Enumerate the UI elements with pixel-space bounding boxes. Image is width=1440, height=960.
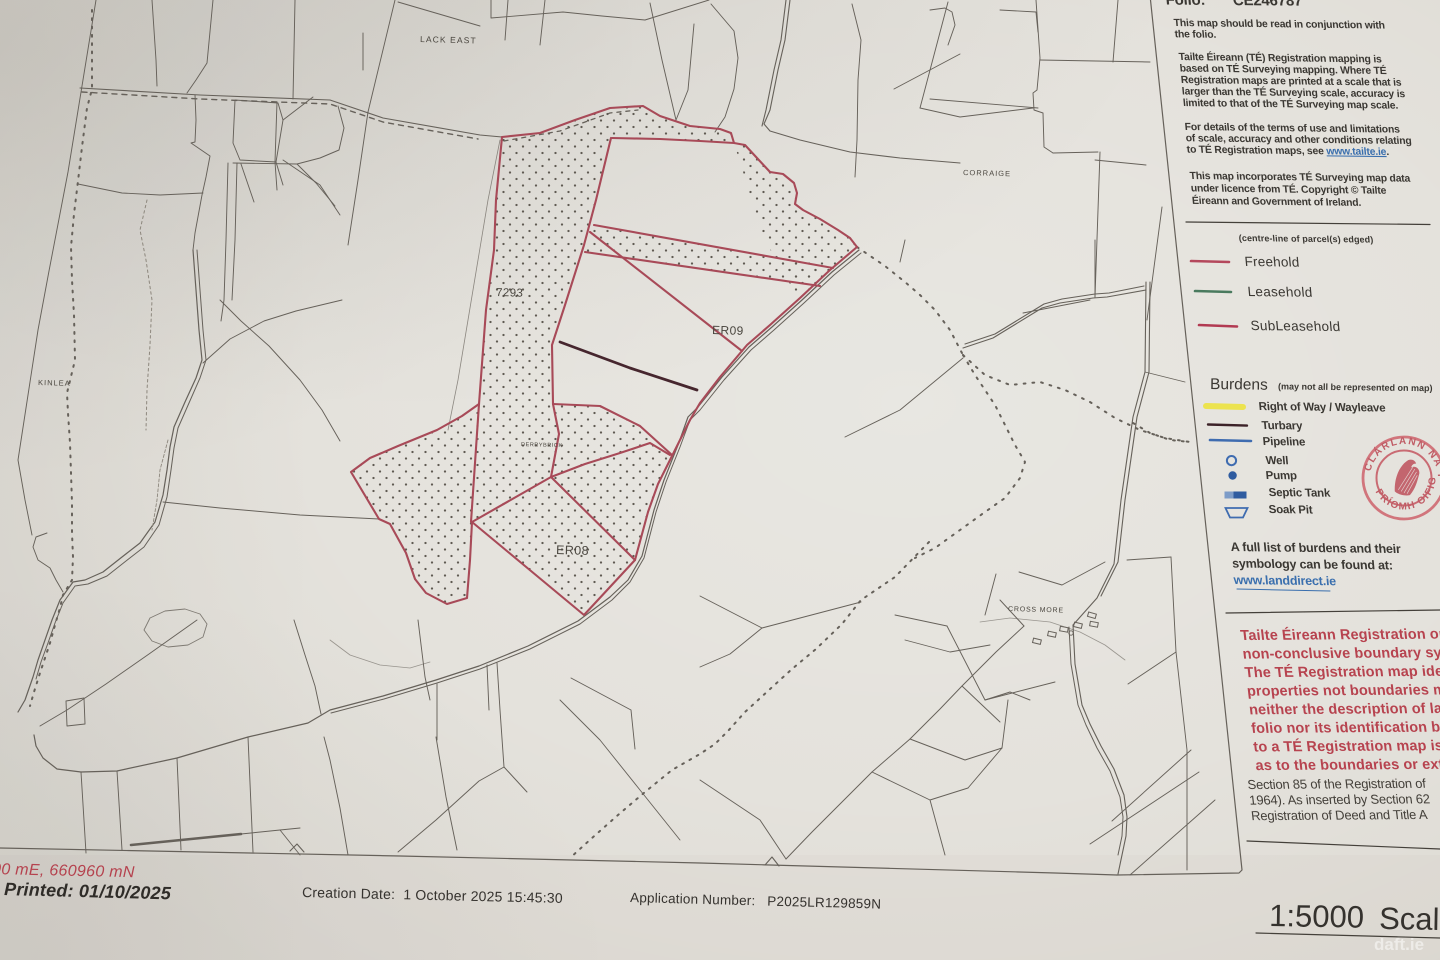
- svg-text:CORRAIGE: CORRAIGE: [963, 168, 1011, 178]
- svg-text:Pipeline: Pipeline: [1262, 436, 1306, 449]
- svg-text:Well: Well: [1265, 455, 1289, 467]
- svg-text:Leasehold: Leasehold: [1247, 284, 1313, 300]
- svg-text:non-conclusive boundary syst: non-conclusive boundary syst: [1242, 645, 1440, 662]
- svg-text:DERRYBRICK: DERRYBRICK: [521, 442, 563, 449]
- svg-text:7293: 7293: [496, 287, 523, 300]
- svg-text:daft.ie: daft.ie: [1374, 935, 1424, 954]
- svg-text:LACK EAST: LACK EAST: [420, 34, 477, 45]
- svg-text:Tailte Éireann Registration op: Tailte Éireann Registration ope: [1240, 626, 1440, 644]
- svg-text:1:5000: 1:5000: [1269, 898, 1364, 935]
- svg-text:KINLEA: KINLEA: [38, 378, 71, 388]
- svg-text:Section 85 of the Registration: Section 85 of the Registration of: [1247, 776, 1427, 792]
- svg-text:Soak Pit: Soak Pit: [1268, 504, 1313, 517]
- svg-text:neither the description of lan: neither the description of lan: [1248, 701, 1440, 718]
- svg-text:(centre-line of parcel(s) edge: (centre-line of parcel(s) edged): [1238, 233, 1374, 245]
- svg-text:Pump: Pump: [1265, 470, 1297, 482]
- svg-text:00 mE, 660960 mN: 00 mE, 660960 mN: [0, 861, 135, 881]
- svg-text:properties not boundaries me: properties not boundaries me: [1246, 682, 1440, 699]
- svg-text:Right of Way / Wayleave: Right of Way / Wayleave: [1258, 401, 1387, 415]
- svg-text:SubLeasehold: SubLeasehold: [1250, 318, 1341, 334]
- svg-text:symbology can be found at:: symbology can be found at:: [1232, 557, 1394, 573]
- svg-text:Burdens: Burdens: [1210, 376, 1268, 394]
- svg-text:to a TÉ Registration map is: to a TÉ Registration map is: [1252, 737, 1440, 755]
- svg-text:(may not all be represented on: (may not all be represented on map): [1278, 381, 1433, 393]
- svg-text:ER08: ER08: [556, 543, 589, 558]
- svg-text:Septic Tank: Septic Tank: [1268, 487, 1331, 500]
- svg-text:as to the boundaries or exte: as to the boundaries or exte: [1255, 757, 1440, 774]
- svg-text:Scale: Scale: [1379, 901, 1440, 937]
- svg-text:Freehold: Freehold: [1244, 254, 1300, 270]
- svg-text:1964). As inserted by Section: 1964). As inserted by Section 62: [1248, 791, 1430, 807]
- svg-text:ER09: ER09: [712, 323, 744, 338]
- svg-text:The TÉ Registration map iden: The TÉ Registration map iden: [1244, 663, 1440, 681]
- svg-text:the folio.: the folio.: [1174, 29, 1217, 40]
- svg-text:www.landdirect.ie: www.landdirect.ie: [1232, 573, 1337, 588]
- svg-text:Registration of Deed and Title: Registration of Deed and Title A: [1250, 807, 1428, 823]
- svg-text:A full list of burdens and the: A full list of burdens and their: [1230, 540, 1402, 556]
- svg-text:CROSS MORE: CROSS MORE: [1008, 606, 1064, 614]
- svg-text:Folio: CE246787: Folio: CE246787: [1165, 0, 1303, 10]
- svg-text:folio nor its identification b: folio nor its identification by: [1250, 720, 1440, 737]
- svg-text:Turbary: Turbary: [1261, 420, 1303, 432]
